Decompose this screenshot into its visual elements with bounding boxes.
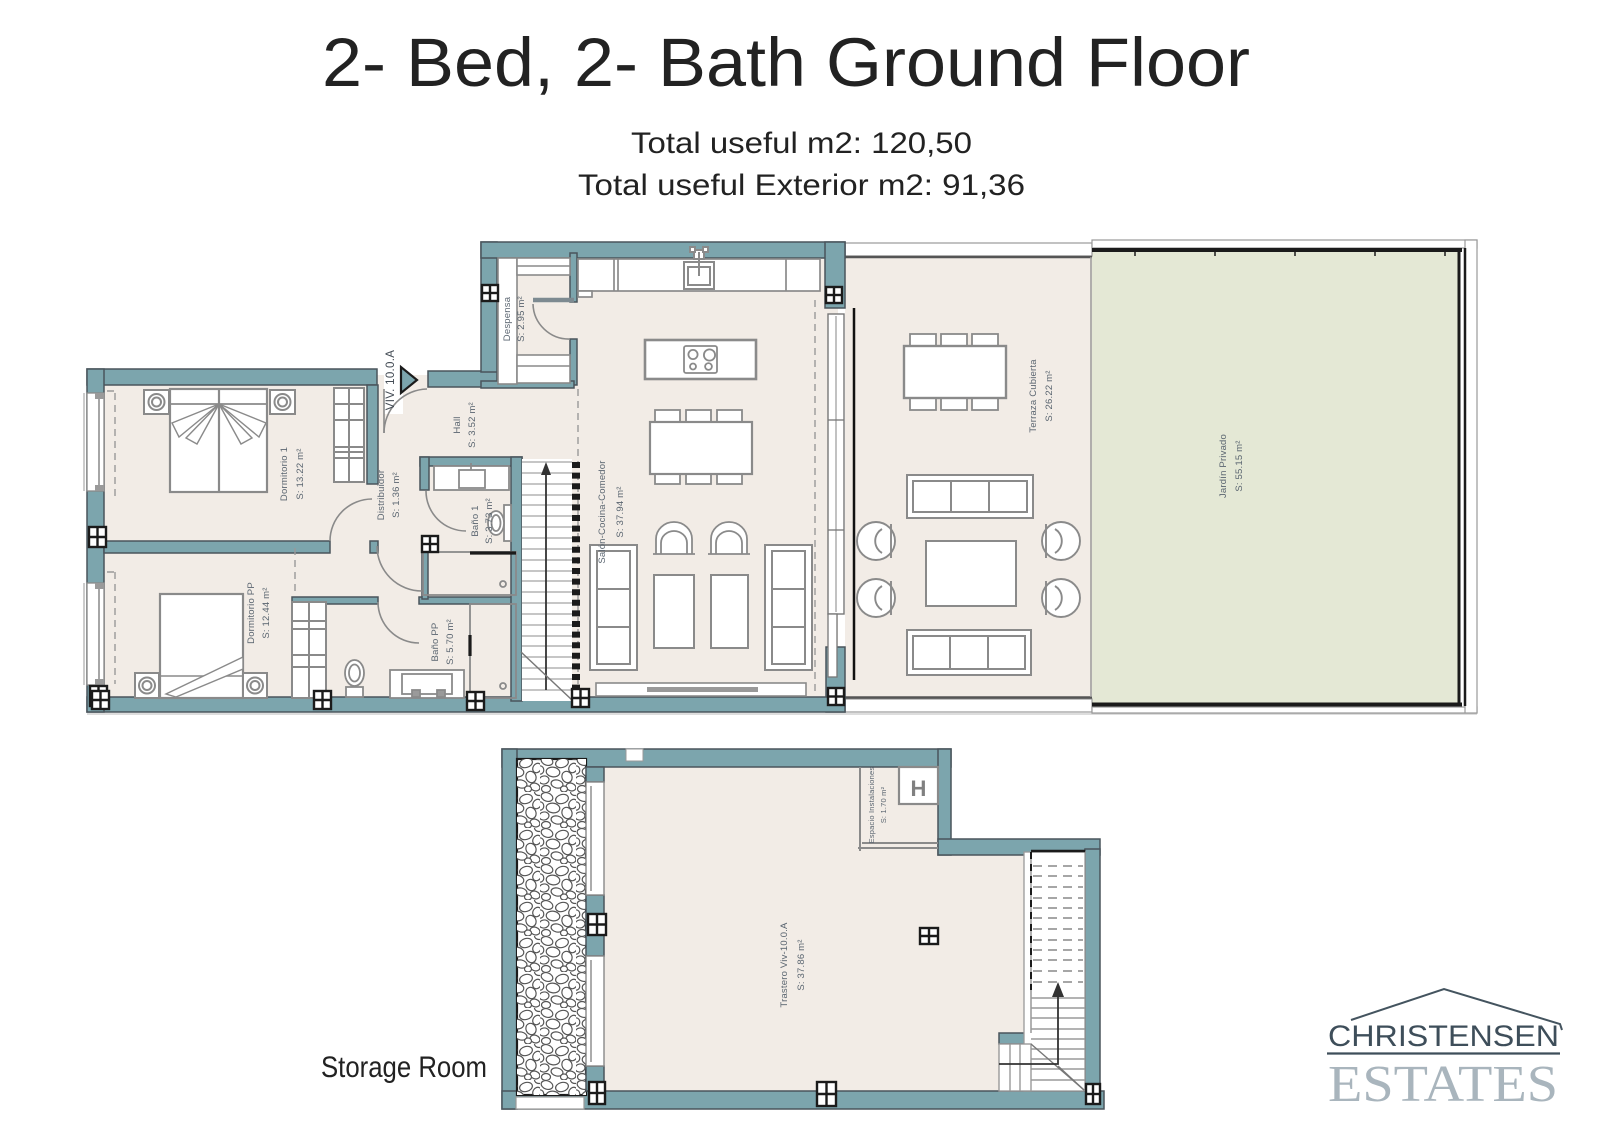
svg-text:S: 5.70 m²: S: 5.70 m² [445, 619, 456, 665]
svg-text:Baño PP: Baño PP [430, 623, 441, 662]
svg-text:Trastero Viv-10.0.A: Trastero Viv-10.0.A [779, 922, 790, 1008]
svg-text:ESTATES: ESTATES [1328, 1056, 1558, 1113]
svg-text:CHRISTENSEN: CHRISTENSEN [1328, 1020, 1559, 1053]
svg-text:Despensa: Despensa [502, 296, 513, 341]
svg-text:S: 37.86 m²: S: 37.86 m² [796, 939, 807, 990]
svg-text:S: 1.70 m²: S: 1.70 m² [879, 786, 888, 823]
svg-text:2- Bed, 2- Bath Ground Floor: 2- Bed, 2- Bath Ground Floor [322, 24, 1250, 101]
svg-text:Total useful Exterior m2: 91,3: Total useful Exterior m2: 91,36 [578, 169, 1025, 202]
svg-text:Baño 1: Baño 1 [470, 505, 481, 536]
svg-text:H: H [911, 776, 927, 801]
svg-text:S: 26.22 m²: S: 26.22 m² [1044, 370, 1055, 421]
svg-text:S: 37.94 m²: S: 37.94 m² [615, 486, 626, 537]
svg-text:Espacio Instalaciones: Espacio Instalaciones [867, 767, 876, 844]
svg-text:Distribuidor: Distribuidor [376, 470, 387, 520]
svg-text:S: 3.52 m²: S: 3.52 m² [467, 402, 478, 448]
svg-text:S: 3.73 m²: S: 3.73 m² [484, 498, 495, 544]
svg-text:Total useful m2: 120,50: Total useful m2: 120,50 [631, 127, 972, 160]
svg-text:Jardín Privado: Jardín Privado [1218, 434, 1229, 498]
svg-text:S: 12.44 m²: S: 12.44 m² [261, 587, 272, 638]
svg-text:Salón-Cocina-Comedor: Salón-Cocina-Comedor [597, 460, 608, 563]
svg-text:S: 2.95 m²: S: 2.95 m² [516, 296, 527, 342]
svg-text:Hall: Hall [452, 416, 463, 433]
svg-text:VIV. 10.0.A: VIV. 10.0.A [385, 350, 397, 410]
svg-text:Dormitorio PP: Dormitorio PP [246, 582, 257, 644]
svg-text:S: 13.22 m²: S: 13.22 m² [295, 448, 306, 499]
svg-text:Dormitorio 1: Dormitorio 1 [279, 447, 290, 501]
svg-text:Storage Room: Storage Room [321, 1051, 487, 1084]
svg-text:S: 1.36 m²: S: 1.36 m² [391, 472, 402, 518]
svg-text:Terraza Cubierta: Terraza Cubierta [1028, 359, 1039, 433]
svg-text:S: 55.15 m²: S: 55.15 m² [1234, 440, 1245, 491]
